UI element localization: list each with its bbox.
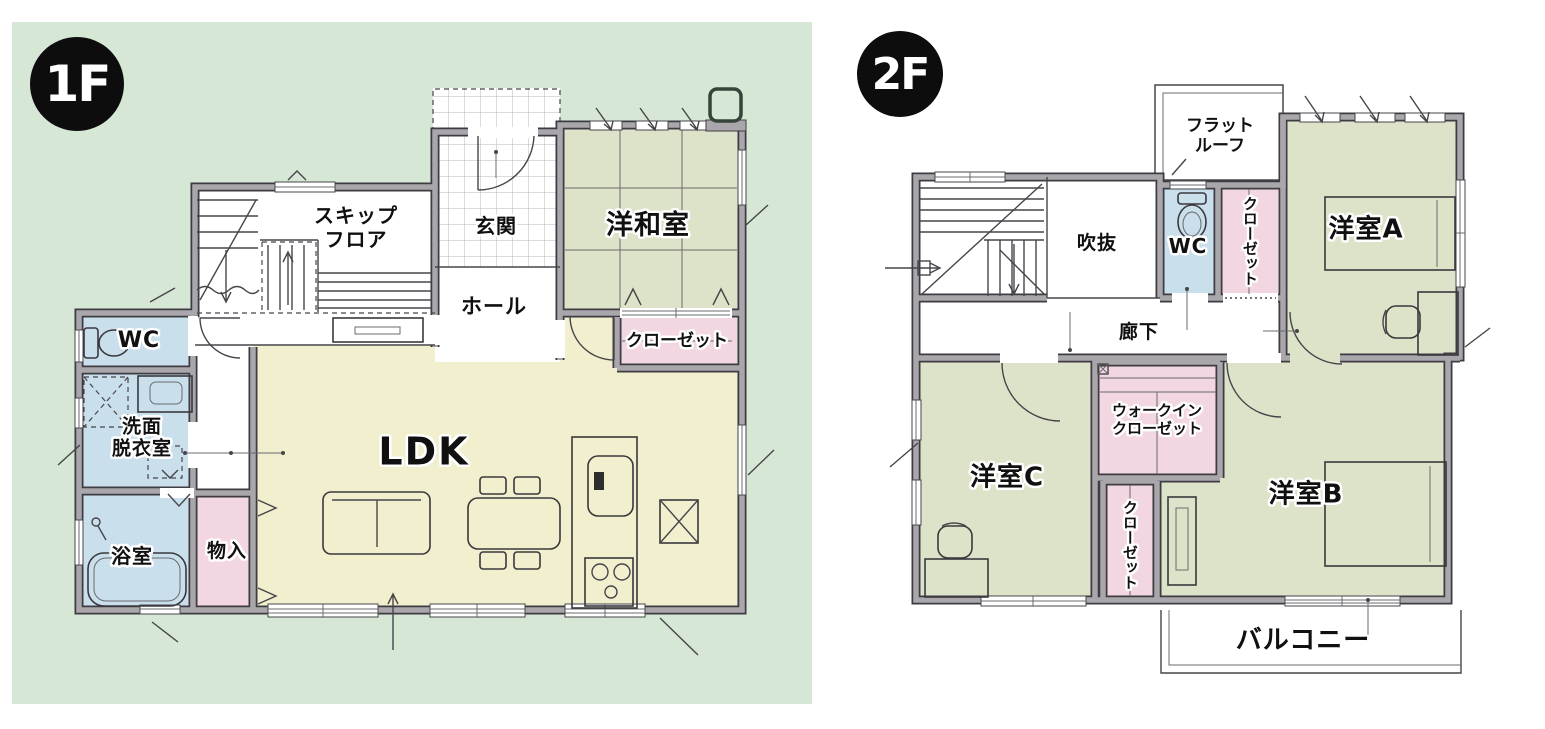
floor2-badge: 2F bbox=[857, 31, 943, 117]
floorplan-canvas: 1F 2F スキップ フロア 玄関 洋和室 ホール WC 洗面 脱衣室 浴室 物… bbox=[0, 0, 1545, 729]
room-label-yowashitsu: 洋和室 bbox=[606, 210, 690, 242]
room-label-mononyu: 物入 bbox=[207, 540, 247, 562]
room-label-flat-roof: フラット ルーフ bbox=[1186, 116, 1254, 156]
room-label-balcony: バルコニー bbox=[1236, 626, 1370, 657]
room-label-hall: ホール bbox=[461, 295, 527, 320]
room-label-closet-a: クローゼット bbox=[1240, 196, 1258, 286]
room-label-yoshitsu-a: 洋室A bbox=[1328, 215, 1403, 246]
room-label-yoshitsu-c: 洋室C bbox=[970, 463, 1044, 494]
floor2-plan bbox=[885, 85, 1490, 673]
room-label-genkan: 玄関 bbox=[475, 215, 517, 239]
room-label-rouka: 廊下 bbox=[1119, 321, 1159, 343]
room-label-yokushitsu: 浴室 bbox=[111, 545, 153, 569]
room-label-yoshitsu-b: 洋室B bbox=[1269, 480, 1344, 511]
floor1-badge: 1F bbox=[30, 37, 124, 131]
floorplan-graphics bbox=[0, 0, 1545, 729]
floor1-plan bbox=[58, 88, 774, 655]
room-label-ldk: LDK bbox=[378, 430, 469, 475]
room-label-closet-1f: クローゼット bbox=[626, 331, 728, 351]
room-label-walk-in-closet: ウォークイン クローゼット bbox=[1112, 402, 1202, 437]
room-label-senmen: 洗面 脱衣室 bbox=[112, 416, 172, 461]
room-label-fukinuke: 吹抜 bbox=[1077, 232, 1117, 254]
room-label-skip-floor: スキップ フロア bbox=[314, 204, 398, 251]
room-label-wc-1f: WC bbox=[118, 328, 160, 354]
room-label-wc-2f: WC bbox=[1169, 235, 1208, 259]
room-label-closet-b: クローゼット bbox=[1120, 500, 1138, 590]
